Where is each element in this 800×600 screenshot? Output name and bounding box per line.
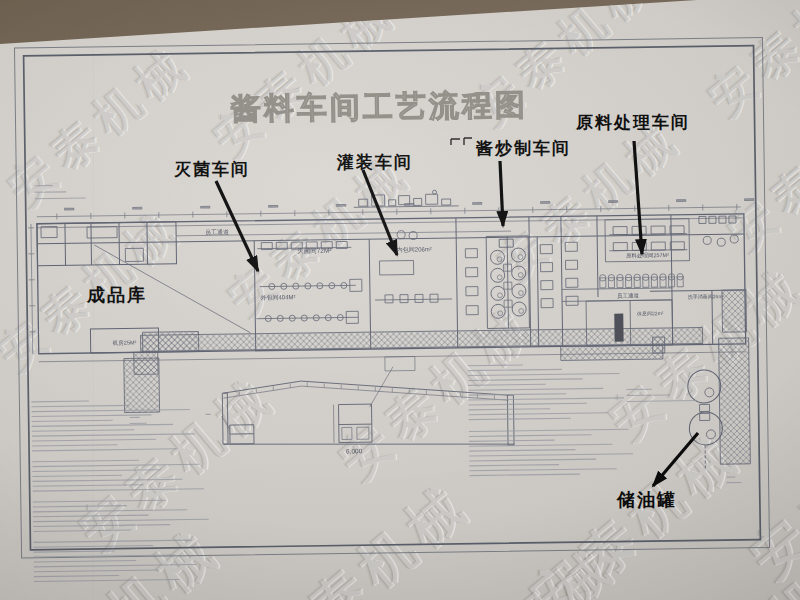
callout-filling: 灌装车间 (337, 151, 413, 174)
arrow-filling (363, 170, 397, 255)
stray-marks (451, 138, 472, 145)
arrow-sterilization (216, 181, 258, 271)
arrow-frying (500, 161, 503, 226)
callout-frying: 酱炒制车间 (476, 137, 571, 160)
callout-raw-material: 原料处理车间 (576, 111, 690, 134)
arrow-oil-tank (653, 433, 698, 486)
callout-oil-tank: 储油罐 (617, 488, 677, 512)
callout-finished-goods: 成品库 (87, 283, 147, 307)
callout-sterilization: 灭菌车间 (174, 158, 250, 181)
photographed-blueprint: 安泰机械安泰机械安泰机械安泰机械安泰机械安泰机械安泰机械安泰机械安泰机械安泰机械… (0, 0, 800, 600)
arrow-raw-material (634, 141, 642, 254)
